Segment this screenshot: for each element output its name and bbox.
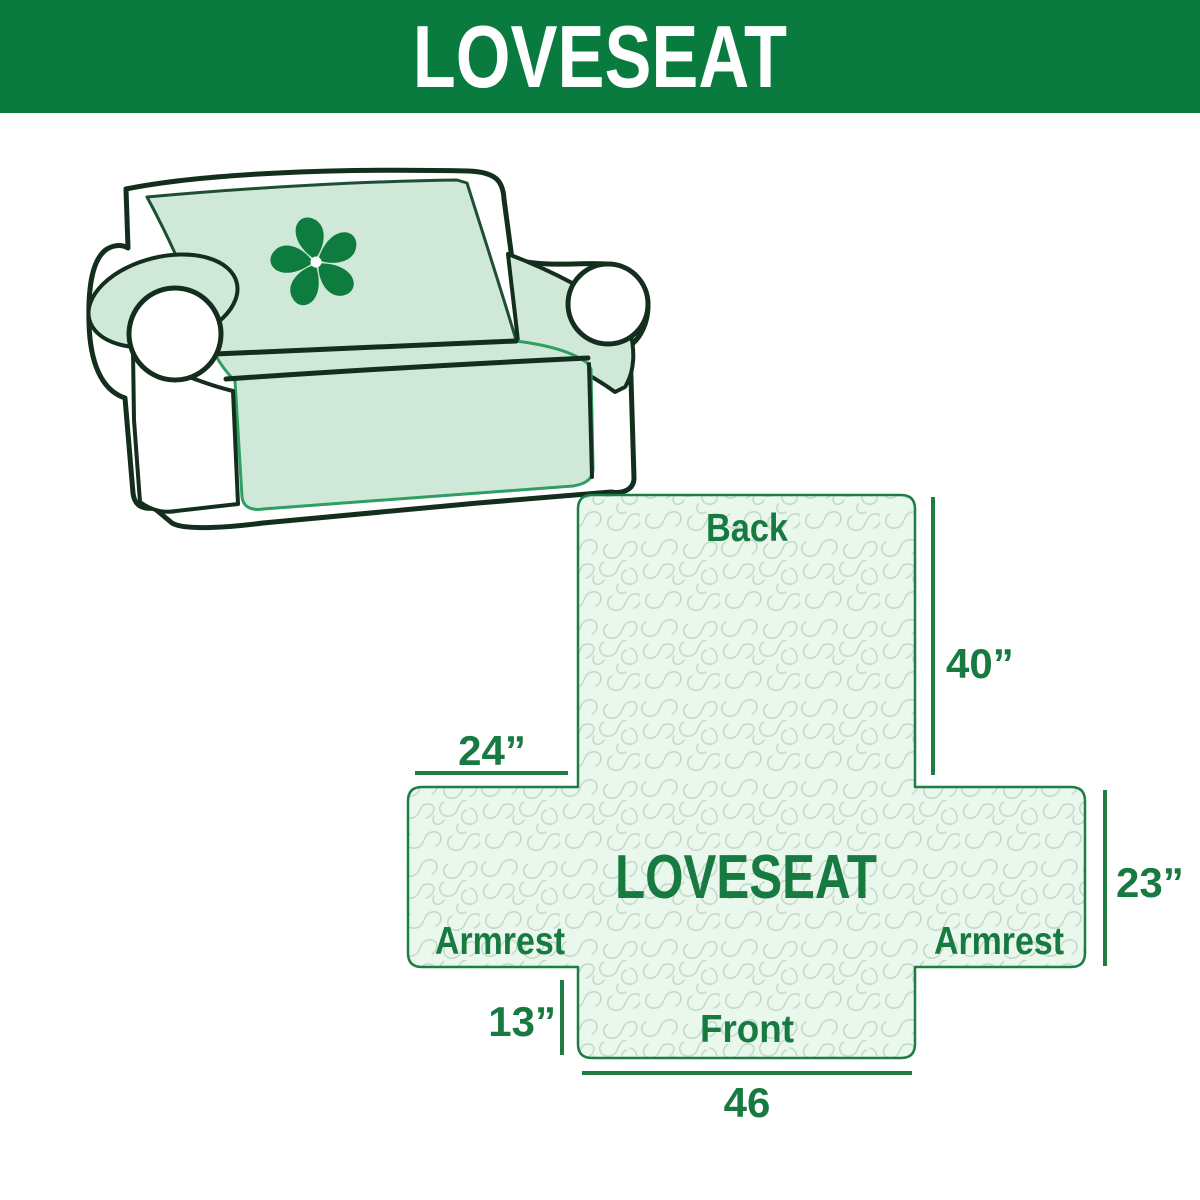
page: LOVESEAT xyxy=(0,0,1200,1200)
scene: Back LOVESEAT Armrest Armrest Front 40” … xyxy=(0,0,1200,1200)
sofa-illustration xyxy=(79,170,648,527)
right-arm-roll xyxy=(568,264,648,344)
measure-front-drop: 13” xyxy=(488,998,556,1045)
measure-armrest-height: 23” xyxy=(1116,859,1184,906)
measure-back-height: 40” xyxy=(946,640,1014,687)
label-front: Front xyxy=(700,1008,794,1051)
cover-outline-shape xyxy=(408,495,1085,1058)
label-back: Back xyxy=(706,507,788,550)
measure-armrest-width: 24” xyxy=(458,727,526,774)
measure-front-width: 46 xyxy=(724,1079,771,1126)
label-armrest-right: Armrest xyxy=(934,920,1064,963)
label-center: LOVESEAT xyxy=(615,843,877,912)
left-arm-roll xyxy=(129,288,221,380)
size-diagram: Back LOVESEAT Armrest Armrest Front 40” … xyxy=(408,495,1184,1126)
label-armrest-left: Armrest xyxy=(435,920,565,963)
